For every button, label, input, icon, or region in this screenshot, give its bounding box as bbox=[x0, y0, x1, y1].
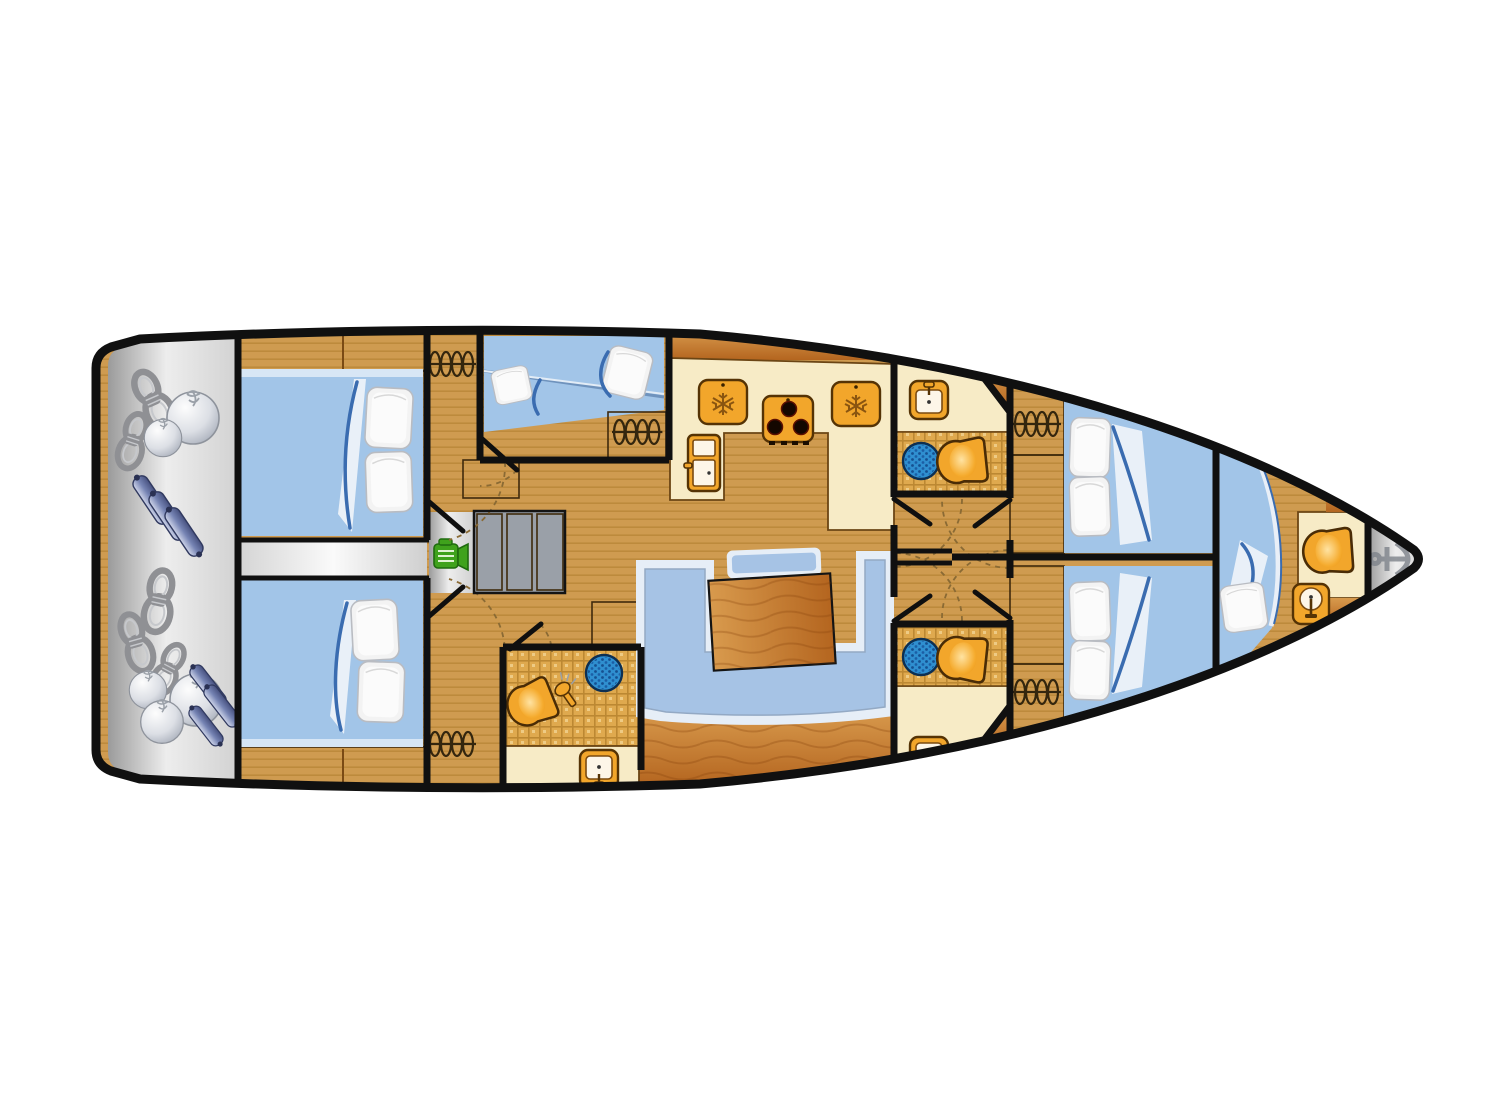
pillow bbox=[1069, 417, 1111, 477]
companionway-steps bbox=[475, 512, 565, 592]
stove-icon bbox=[763, 396, 813, 445]
refrigerator-icon bbox=[684, 435, 720, 491]
freezer-icon bbox=[832, 382, 880, 426]
floor-plan-svg bbox=[0, 0, 1492, 1119]
freezer-icon bbox=[699, 380, 747, 424]
pillow bbox=[364, 387, 413, 449]
aft-corridor bbox=[240, 541, 427, 577]
pillow bbox=[365, 451, 413, 513]
pillow bbox=[490, 364, 533, 406]
salon-table bbox=[708, 573, 835, 670]
pillow bbox=[1069, 640, 1111, 700]
shower-drain-icon bbox=[903, 443, 939, 479]
yacht-floor-plan bbox=[0, 0, 1492, 1119]
pillow bbox=[350, 599, 399, 661]
pillow bbox=[1069, 476, 1111, 536]
sink-icon bbox=[910, 381, 948, 419]
shower-drain-icon bbox=[586, 655, 622, 691]
shower-drain-icon bbox=[903, 639, 939, 675]
pillow bbox=[1219, 581, 1269, 633]
pillow bbox=[1069, 581, 1111, 641]
toilet-icon bbox=[1302, 528, 1354, 575]
pillow bbox=[357, 661, 405, 723]
stern-locker bbox=[108, 335, 244, 783]
